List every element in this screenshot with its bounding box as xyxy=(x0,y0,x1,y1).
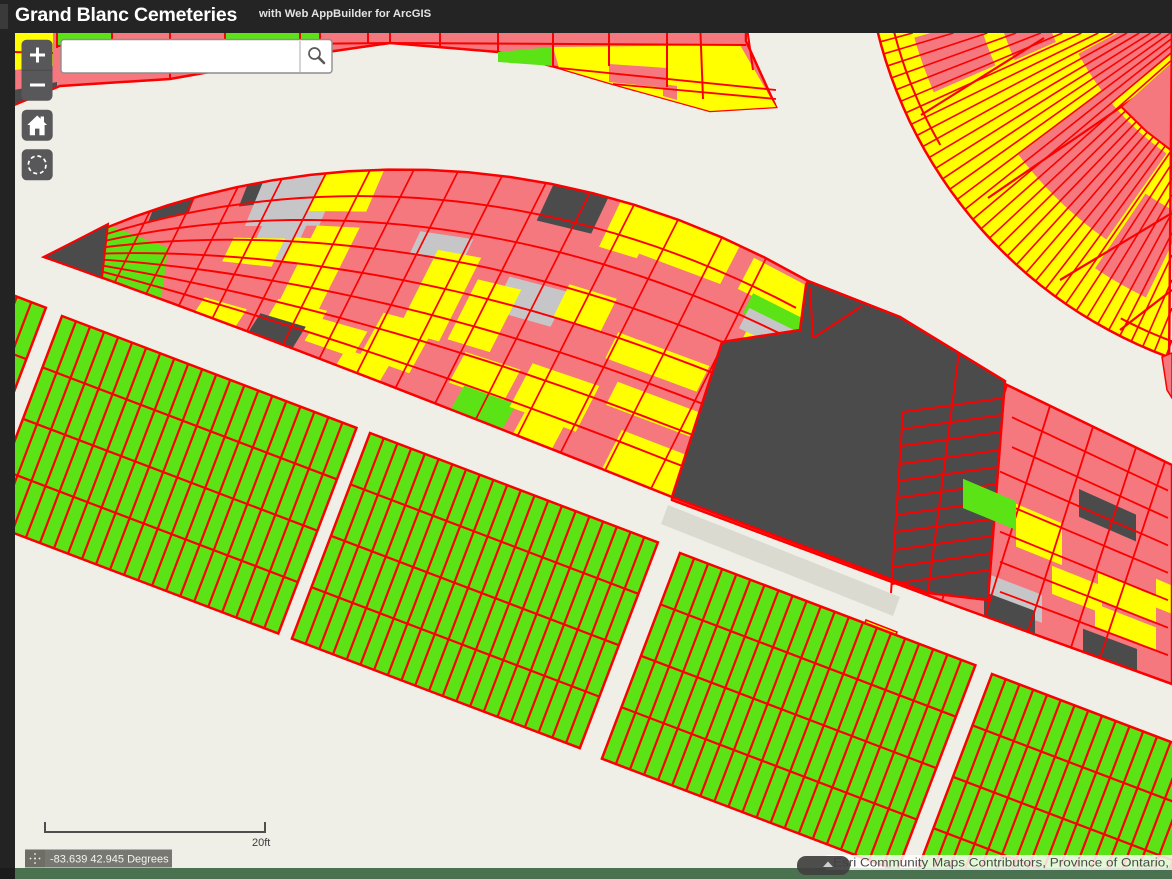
svg-text:Grand Blanc Cemeteries: Grand Blanc Cemeteries xyxy=(15,4,237,26)
svg-text:20ft: 20ft xyxy=(252,837,270,849)
svg-text:-83.639 42.945 Degrees: -83.639 42.945 Degrees xyxy=(50,854,169,866)
svg-text:with Web AppBuilder for ArcGIS: with Web AppBuilder for ArcGIS xyxy=(258,8,432,20)
svg-text:Esri Community Maps Contributo: Esri Community Maps Contributors, Provin… xyxy=(833,858,1169,870)
